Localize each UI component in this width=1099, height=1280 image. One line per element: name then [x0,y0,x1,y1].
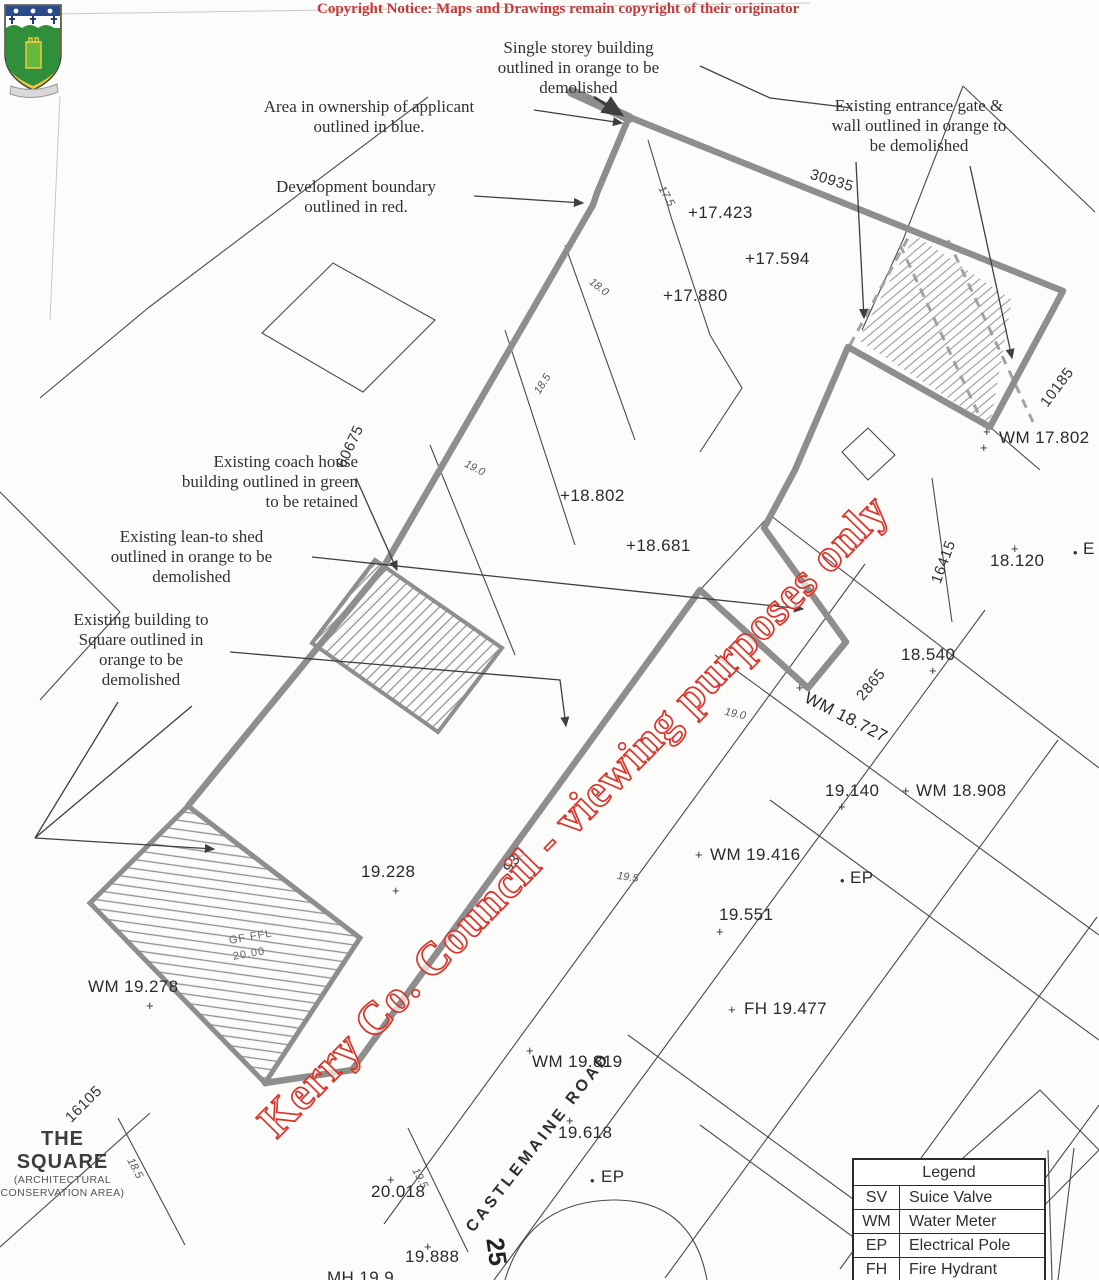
annotation-line: outlined in blue. [208,117,530,137]
point-marker: • [1073,545,1078,560]
spot-height-17423: +17.423 [688,203,753,223]
annotation-line: Development boundary [240,177,472,197]
annotation-line: demolished [46,670,236,690]
cross-marker: + [695,847,703,862]
legend-label: Fire Hydrant [900,1258,997,1280]
note-area-ownership: Area in ownership of applicantoutlined i… [208,97,530,137]
legend-title: Legend [854,1160,1044,1185]
hatch-lean-to-shed [312,560,502,732]
cross-marker: + [146,998,154,1013]
the-square-sub1: (ARCHITECTURAL [0,1174,125,1187]
kerry-council-crest [2,2,66,102]
annotation-line: to be retained [130,492,358,512]
legend-label: Electrical Pole [900,1234,1010,1257]
annotation-line: Area in ownership of applicant [208,97,530,117]
legend-row: EPElectrical Pole [854,1233,1044,1257]
water-meter-19416: WM 19.416 [710,845,801,865]
cross-marker: + [980,440,988,455]
annotation-line: Existing building to [46,610,236,630]
copyright-notice: Copyright Notice: Maps and Drawings rema… [317,1,799,18]
electrical-pole-label: EP [850,868,873,888]
annotation-line: building outlined in green [130,472,358,492]
leader-dev-boundary [474,196,583,203]
fire-hydrant-19477: FH 19.477 [744,999,827,1019]
cross-marker: + [392,883,400,898]
leader-building-square-arm2 [35,706,192,838]
leader-coach-house [356,478,397,570]
legend-row: SVSuice Valve [854,1185,1044,1209]
annotation-line: orange to be [46,650,236,670]
electrical-pole-label: EP [601,1167,624,1187]
water-meter-19278: WM 19.278 [88,977,179,997]
note-lean-to: Existing lean-to shedoutlined in orange … [70,527,313,587]
cross-marker: + [838,799,846,814]
legend-table: Legend SVSuice ValveWMWater MeterEPElect… [852,1158,1046,1280]
cross-marker: + [929,663,937,678]
cross-marker: + [526,1043,534,1058]
annotation-line: demolished [471,78,686,98]
cross-marker: + [716,924,724,939]
annotation-line: Existing coach house [130,452,358,472]
cross-marker: + [796,680,804,695]
leader-entrance-gate-1 [856,162,864,318]
legend-label: Water Meter [900,1210,996,1233]
legend-row: FHFire Hydrant [854,1257,1044,1280]
cross-marker: + [902,783,910,798]
annotation-line: Existing lean-to shed [70,527,313,547]
annotation-line: outlined in red. [240,197,472,217]
annotation-line: Single storey building [471,38,686,58]
annotation-line: Existing entrance gate & [748,96,1090,116]
annotation-line: wall outlined in orange to [748,116,1090,136]
water-meter-17802: WM 17.802 [999,428,1090,448]
the-square-sub2: CONSERVATION AREA) [0,1187,125,1200]
spot-height-18540: 18.540 [901,645,955,665]
point-marker: • [590,1173,595,1188]
legend-abbr: EP [854,1234,900,1257]
water-meter-18908: WM 18.908 [916,781,1007,801]
site-map-page: Copyright Notice: Maps and Drawings rema… [0,0,1099,1280]
cross-marker: + [983,424,991,439]
cross-marker: + [424,1239,432,1254]
annotation-line: Square outlined in [46,630,236,650]
annotation-line: demolished [70,567,313,587]
spot-height-17594: +17.594 [745,249,810,269]
manhole-partial: MH 19.9 [327,1268,394,1280]
note-coach-house: Existing coach housebuilding outlined in… [130,452,358,512]
spot-height-19551: 19.551 [719,905,773,925]
legend-rows: SVSuice ValveWMWater MeterEPElectrical P… [854,1185,1044,1280]
spot-height-18802: +18.802 [560,486,625,506]
note-entrance-gate: Existing entrance gate &wall outlined in… [748,96,1090,156]
spot-height-19888: 19.888 [405,1247,459,1267]
legend-label: Suice Valve [900,1186,992,1209]
leader-building-square-arm1 [35,702,118,838]
plot-number-25: 25 [479,1236,512,1268]
annotation-line: be demolished [748,136,1090,156]
spot-height-19140: 19.140 [825,781,879,801]
note-dev-boundary: Development boundaryoutlined in red. [240,177,472,217]
spot-height-19228: 19.228 [361,862,415,882]
cross-marker: + [387,1172,395,1187]
annotation-line: outlined in orange to be [70,547,313,567]
point-marker: • [840,873,845,888]
the-square-block: THE SQUARE (ARCHITECTURAL CONSERVATION A… [0,1128,125,1200]
sheet-neatlines [50,3,810,320]
spot-height-17880: +17.880 [663,286,728,306]
note-single-storey: Single storey buildingoutlined in orange… [471,38,686,98]
legend-abbr: SV [854,1186,900,1209]
ep-partial: E [1083,539,1095,559]
spot-height-18681: +18.681 [626,536,691,556]
legend-abbr: WM [854,1210,900,1233]
legend-row: WMWater Meter [854,1209,1044,1233]
the-square-title: THE SQUARE [0,1128,125,1174]
note-building-square: Existing building toSquare outlined inor… [46,610,236,690]
cross-marker: + [1011,541,1019,556]
legend-abbr: FH [854,1258,900,1280]
cross-marker: + [728,1002,736,1017]
annotation-line: outlined in orange to be [471,58,686,78]
